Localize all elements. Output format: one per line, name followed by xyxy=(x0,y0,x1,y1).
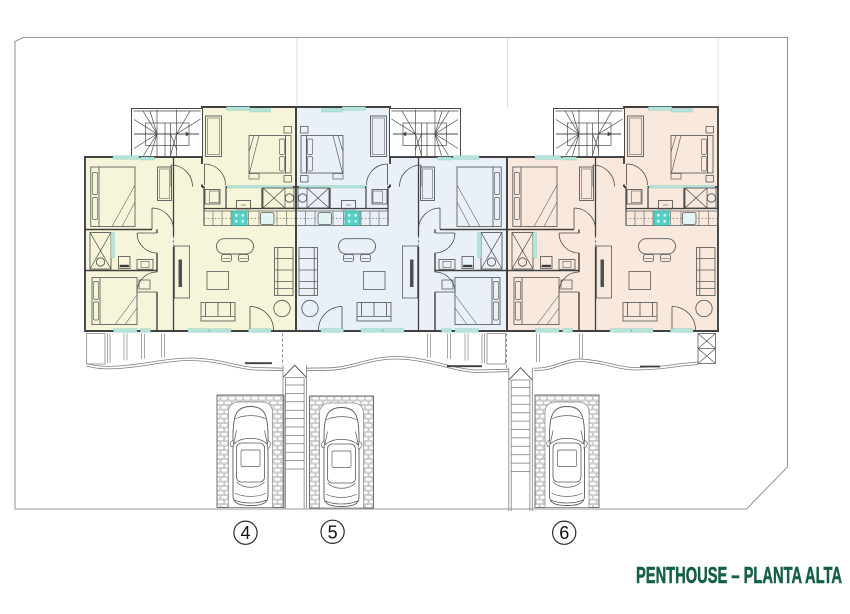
svg-text:5: 5 xyxy=(328,522,338,542)
svg-text:4: 4 xyxy=(240,523,250,543)
svg-text:PENTHOUSE – PLANTA ALTA: PENTHOUSE – PLANTA ALTA xyxy=(636,562,842,588)
svg-text:6: 6 xyxy=(559,523,569,543)
